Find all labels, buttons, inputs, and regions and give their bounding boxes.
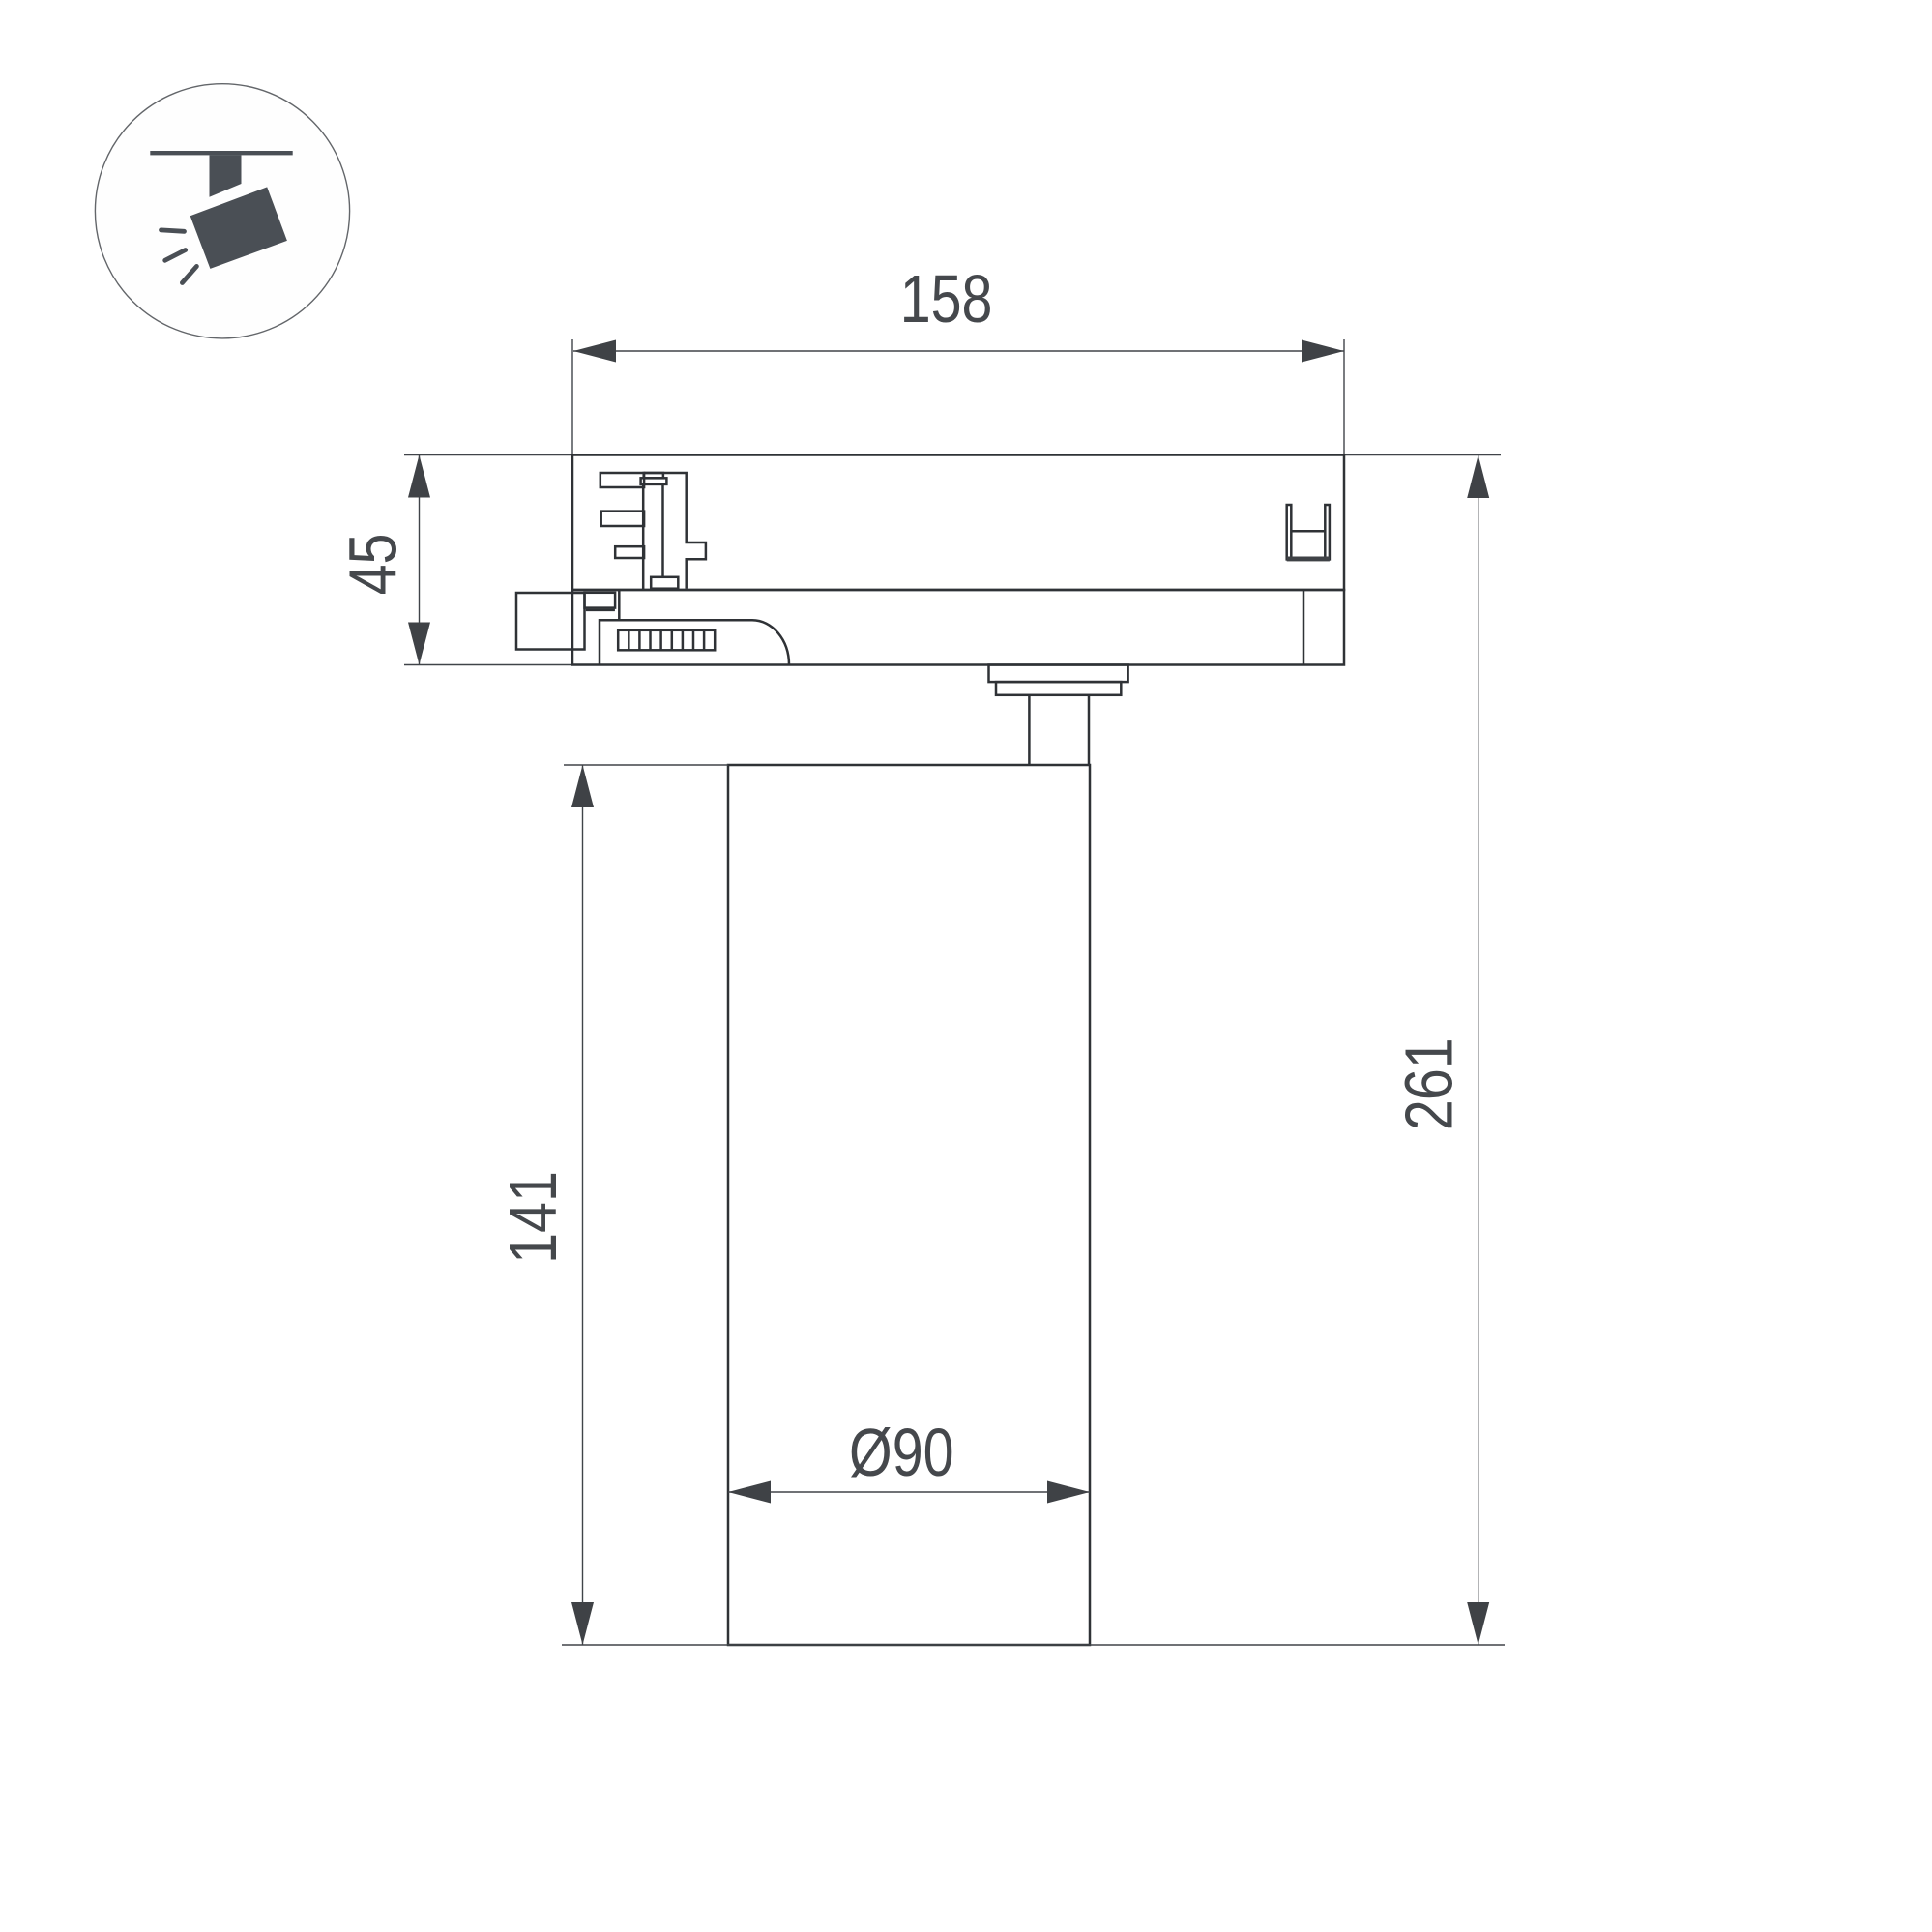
svg-text:45: 45 [335,534,411,596]
svg-text:158: 158 [900,261,993,337]
svg-text:Ø90: Ø90 [849,1414,953,1490]
svg-text:261: 261 [1390,1038,1467,1130]
svg-text:141: 141 [494,1171,571,1264]
